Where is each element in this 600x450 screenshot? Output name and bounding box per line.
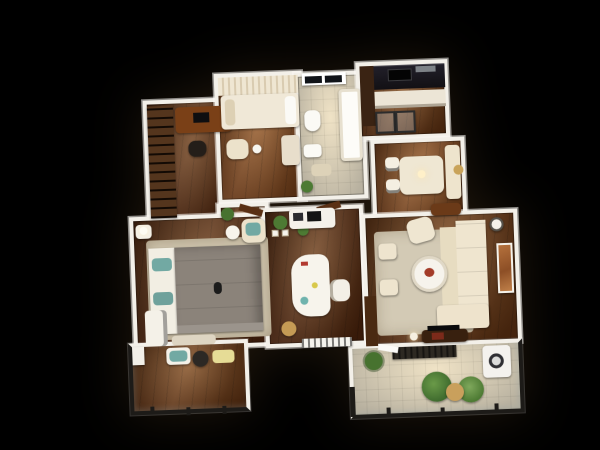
- kids-bed-pillow: [284, 96, 296, 124]
- bed-foot-bench: [172, 334, 216, 346]
- cooktop: [388, 68, 412, 81]
- teal-pillow-2: [153, 292, 173, 306]
- bath-mat: [311, 164, 331, 177]
- dining-chair-1: [385, 157, 400, 172]
- wood-accent-panel: [364, 296, 378, 346]
- printer: [307, 211, 321, 222]
- pouf-1: [378, 243, 397, 260]
- dining-sideboard: [431, 203, 461, 216]
- balcony-bench-cushion: [169, 350, 187, 362]
- armchair-teal-cushion: [245, 222, 260, 236]
- bath-window-pane-right: [325, 75, 342, 83]
- curved-desk: [291, 254, 331, 317]
- bath-sink: [303, 144, 321, 158]
- railing-post-3: [222, 406, 226, 414]
- railing-post-6: [494, 403, 498, 411]
- office-electronics: [293, 213, 303, 221]
- wardrobe-shelving: [147, 106, 177, 219]
- render-canvas: [0, 0, 600, 450]
- bath-window-pane-left: [305, 76, 322, 84]
- floor-plan: [115, 50, 529, 427]
- white-planter: [132, 347, 145, 365]
- railing-post-4: [387, 407, 391, 415]
- hall-frame-1: [272, 230, 279, 237]
- glass-partition-pane-2: [395, 110, 416, 133]
- kitchen-cabinet-row: [374, 89, 446, 109]
- desk-red-item: [301, 262, 308, 266]
- closet-chair: [188, 140, 207, 157]
- range-hood: [415, 66, 435, 73]
- kids-dresser: [281, 135, 300, 166]
- floor-grate: [392, 345, 456, 359]
- dining-chair-2: [386, 179, 401, 194]
- hall-frame-2: [282, 229, 289, 236]
- kids-bed-throw: [225, 99, 236, 125]
- pouf-2: [380, 279, 399, 296]
- railing-post-1: [150, 407, 154, 415]
- railing-post-2: [186, 407, 190, 415]
- laptop: [193, 112, 209, 123]
- desk-chair: [330, 279, 351, 302]
- yellow-tray: [212, 349, 234, 363]
- radiator-bench: [302, 337, 352, 348]
- phone-on-bed: [214, 282, 222, 294]
- kids-armchair: [226, 139, 249, 160]
- orange-artwork: [496, 243, 514, 294]
- toilet: [304, 110, 321, 132]
- teal-pillow-1: [152, 258, 172, 272]
- master-dresser: [145, 310, 168, 347]
- railing-post-5: [441, 407, 445, 415]
- tv-cabinet-accent: [432, 332, 444, 339]
- bathtub: [338, 88, 363, 161]
- glass-partition-pane-1: [375, 111, 396, 134]
